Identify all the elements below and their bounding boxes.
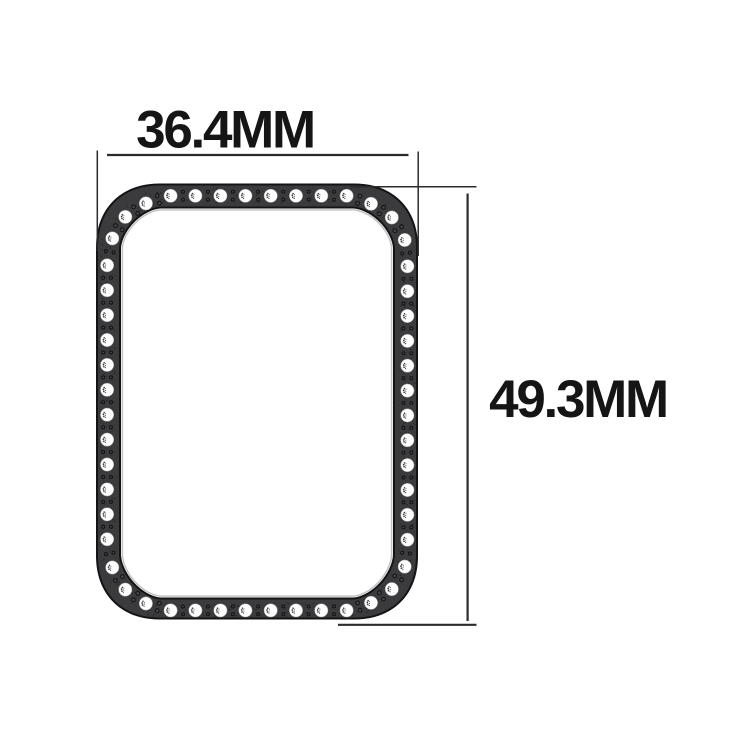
svg-text:36.4MM: 36.4MM (136, 101, 314, 160)
svg-text:49.3MM: 49.3MM (489, 370, 667, 429)
